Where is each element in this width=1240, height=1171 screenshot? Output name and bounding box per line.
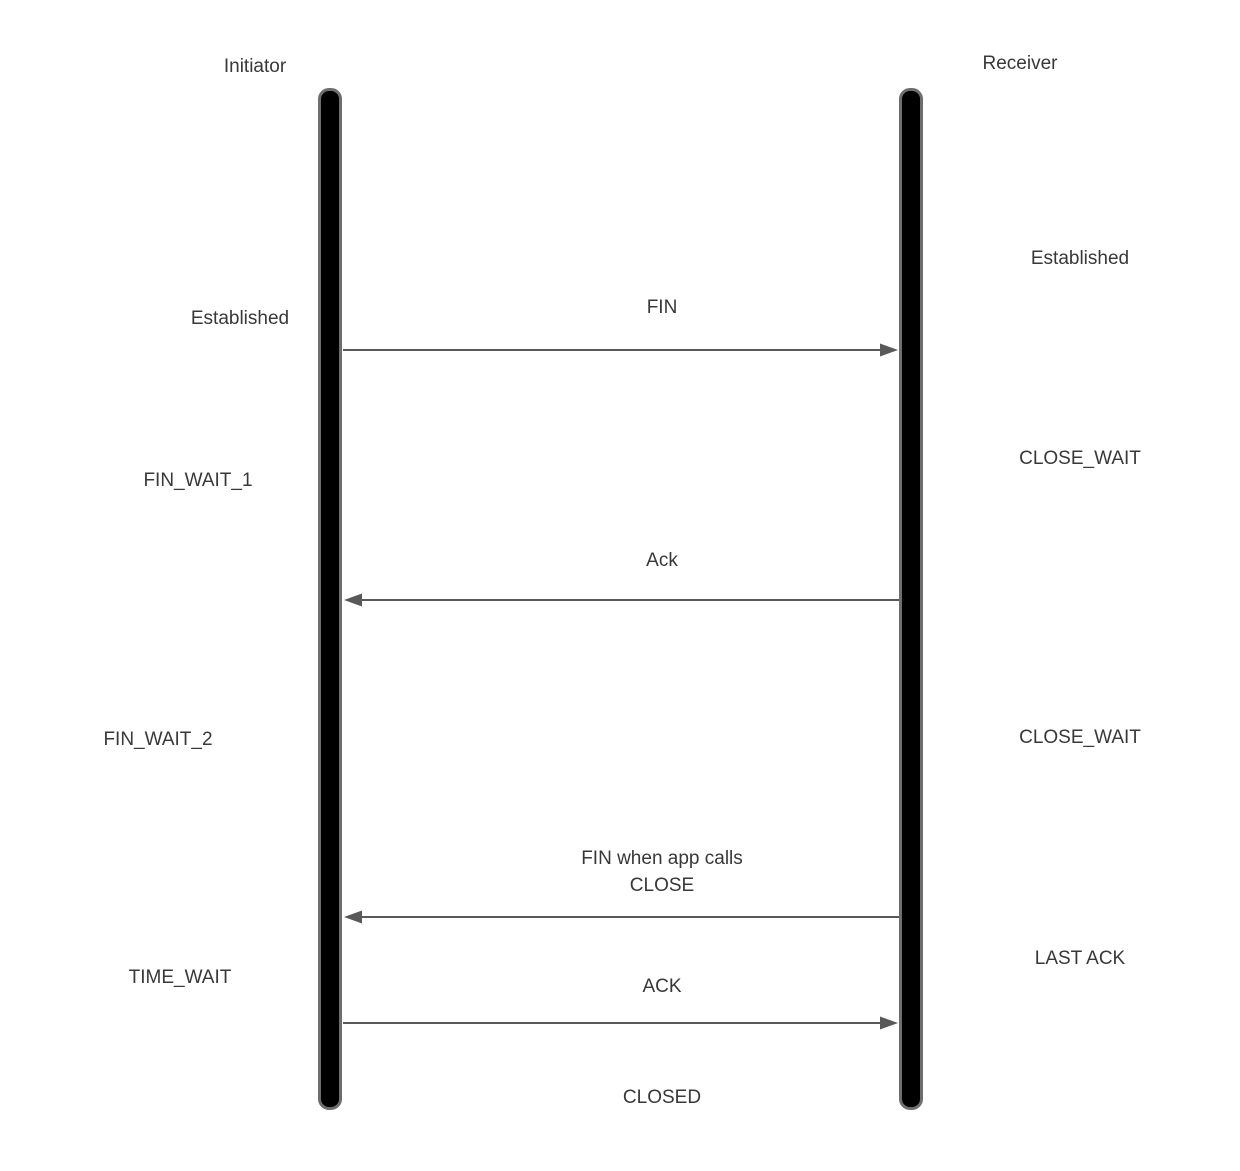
sequence-diagram-canvas: Initiator Receiver Established FIN_WAIT_… [0, 0, 1240, 1171]
receiver-state-close-wait-1: CLOSE_WAIT [970, 448, 1190, 470]
initiator-state-time-wait: TIME_WAIT [70, 967, 290, 989]
receiver-state-last-ack: LAST ACK [970, 948, 1190, 970]
message-label-fin-close-line1: FIN when app calls [462, 845, 862, 872]
message-label-ack-lower: Ack [462, 550, 862, 572]
initiator-state-fin-wait-2: FIN_WAIT_2 [48, 729, 268, 751]
receiver-state-close-wait-2: CLOSE_WAIT [970, 727, 1190, 749]
message-label-fin-close-line2: CLOSE [462, 872, 862, 899]
message-label-ack-final: ACK [462, 976, 862, 998]
message-arrow-fin-close [344, 911, 899, 924]
message-arrow-fin [343, 344, 898, 357]
message-label-fin-close: FIN when app calls CLOSE [462, 845, 862, 899]
initiator-state-established: Established [130, 308, 350, 330]
message-label-fin: FIN [462, 297, 862, 319]
message-arrow-ack-final [343, 1017, 898, 1030]
final-state-closed: CLOSED [462, 1087, 862, 1109]
message-arrow-ack-lower [344, 594, 899, 607]
receiver-state-established: Established [970, 248, 1190, 270]
initiator-state-fin-wait-1: FIN_WAIT_1 [88, 470, 308, 492]
